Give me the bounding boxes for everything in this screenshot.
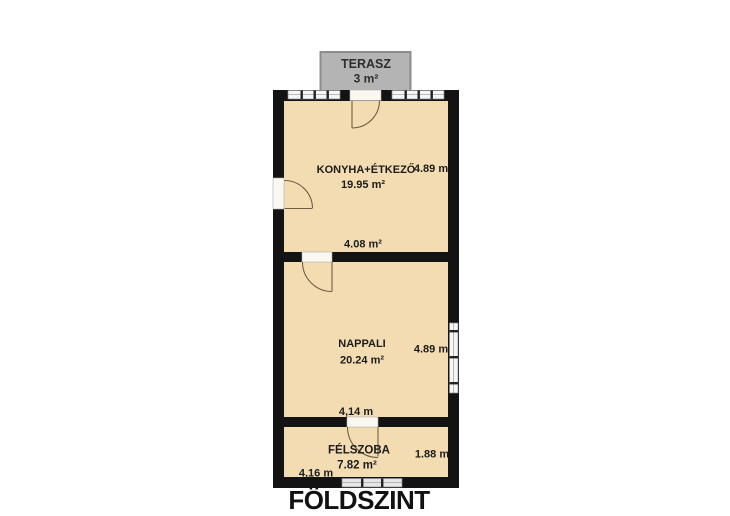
nappali-bottom-dimension: 4,14 m bbox=[339, 406, 373, 418]
felszoba-area: 7.82 m² bbox=[337, 460, 377, 472]
konyha-area: 19.95 m² bbox=[341, 179, 385, 191]
nappali-area: 20.24 m² bbox=[340, 355, 384, 367]
nappali-side-dimension: 4.89 m bbox=[414, 344, 448, 356]
konyha-bottom-dimension: 4.08 m² bbox=[344, 239, 382, 251]
floorplan-image: TERASZ 3 m² bbox=[0, 0, 730, 516]
window-top-left bbox=[288, 91, 340, 100]
felszoba-bottom-dimension: 4,16 m bbox=[299, 468, 333, 480]
terrace-name: TERASZ bbox=[341, 57, 391, 71]
floor-plan-canvas: TERASZ 3 m² bbox=[0, 0, 730, 516]
window-top-right bbox=[392, 91, 444, 100]
nappali-name: NAPPALI bbox=[338, 338, 385, 350]
konyha-side-dimension: 4.89 m bbox=[414, 163, 448, 175]
window-right-nappali bbox=[450, 323, 459, 393]
konyha-name: KONYHA+ÉTKEZŐ bbox=[317, 163, 416, 176]
felszoba-name: FÉLSZOBA bbox=[328, 444, 390, 457]
felszoba-side-dimension: 1.88 m bbox=[415, 449, 449, 461]
plan-title: FÖLDSZINT bbox=[288, 485, 430, 515]
terrace-size: 3 m² bbox=[354, 72, 379, 86]
